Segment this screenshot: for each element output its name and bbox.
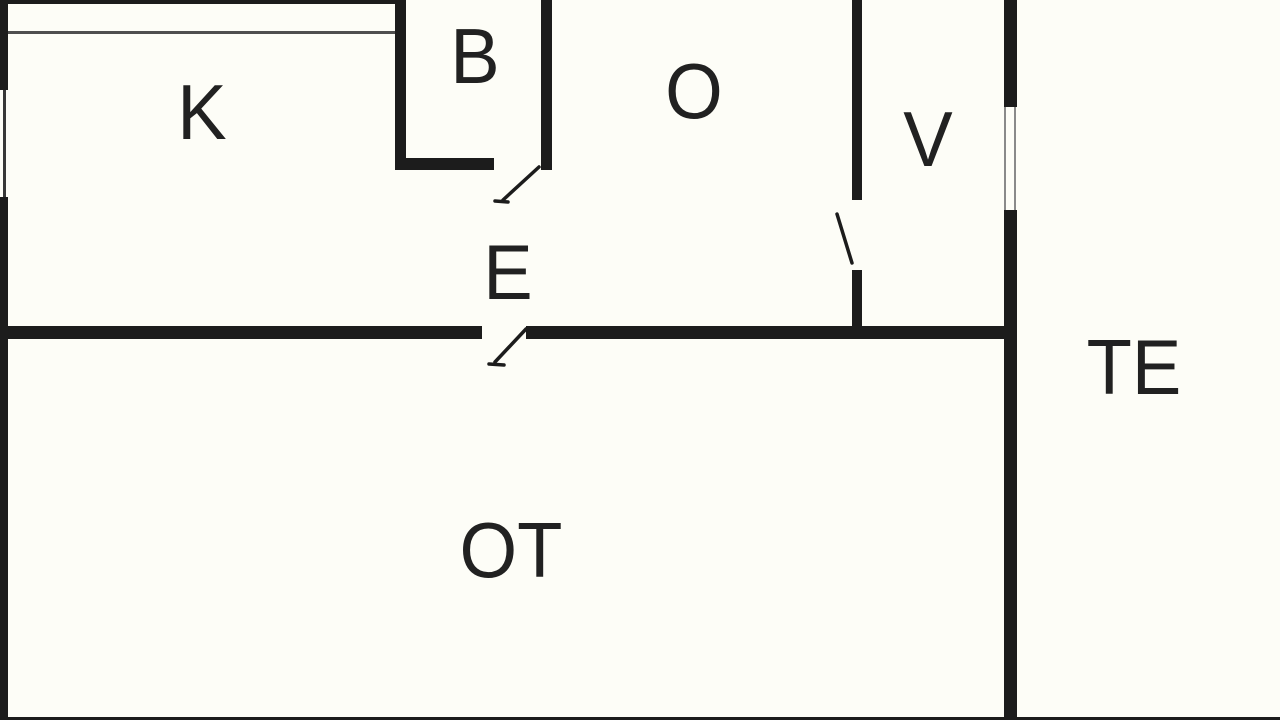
b-door-swing-tick <box>495 201 508 202</box>
b-room-right-wall <box>541 0 552 170</box>
right-window-line-left <box>1004 107 1006 210</box>
room-label-o: O <box>665 52 723 130</box>
main-wall-left-segment <box>0 326 482 339</box>
room-label-te: TE <box>1087 328 1182 406</box>
right-wall-upper <box>1004 0 1017 107</box>
main-wall-right-segment <box>526 326 1016 339</box>
k-room-thin-line <box>8 31 397 34</box>
b-door-swing <box>503 167 539 200</box>
ov-divider-wall-upper <box>852 0 862 200</box>
ov-divider-wall-lower <box>852 270 862 332</box>
e-door-swing <box>495 329 526 362</box>
room-label-e: E <box>483 233 532 311</box>
b-room-bottom-wall <box>395 158 494 170</box>
left-window-line <box>3 90 6 197</box>
floorplan-canvas: K B O V E OT TE <box>0 0 1280 720</box>
b-room-left-wall <box>395 0 406 170</box>
room-label-b: B <box>450 17 499 95</box>
room-label-k: K <box>177 73 226 151</box>
right-wall-lower <box>1004 210 1017 720</box>
left-wall-upper <box>0 0 8 90</box>
room-label-v: V <box>903 100 952 178</box>
e-door-swing-tick <box>489 364 504 365</box>
v-door-swing <box>837 214 852 263</box>
right-window-line-right <box>1014 107 1016 210</box>
room-label-ot: OT <box>460 511 563 589</box>
top-wall-edge <box>0 0 400 4</box>
left-wall-lower <box>0 197 8 720</box>
